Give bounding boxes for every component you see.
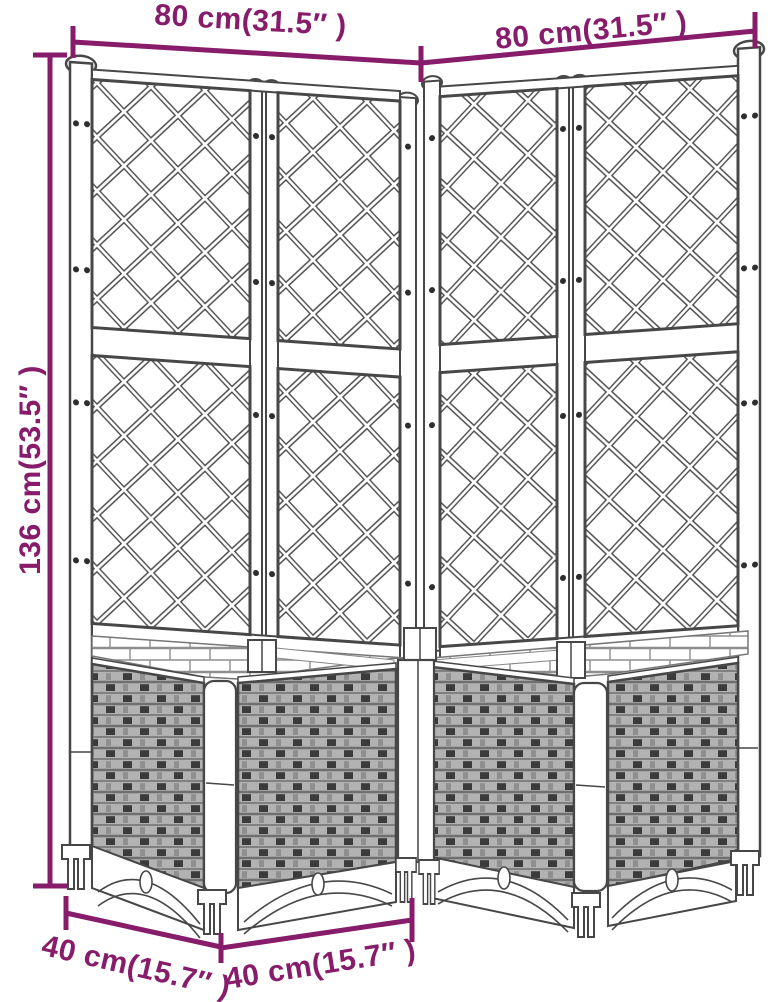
- corner-trim: [204, 681, 236, 893]
- box-weave-face: [238, 669, 396, 889]
- diagram-page: 80 cm(31.5″ ) 80 cm(31.5″ ) 136 cm(53.5″…: [0, 0, 770, 1002]
- lattice-panel: [92, 80, 250, 339]
- planter-boxes: [62, 628, 759, 938]
- box-weave-face: [608, 663, 738, 887]
- trellis-mid-stile: [573, 78, 585, 645]
- lattice-panel: [92, 356, 250, 635]
- trellis-corner-post: [400, 97, 416, 674]
- trellis-mid-stile: [557, 80, 569, 647]
- lattice-panel: [585, 76, 738, 335]
- trellis-post-left: [70, 62, 92, 848]
- lattice-panel: [278, 369, 400, 646]
- lattice-panel: [440, 88, 557, 344]
- box-weave-face: [432, 667, 574, 888]
- planter-trellis-dimension-diagram: 80 cm(31.5″ ) 80 cm(31.5″ ) 136 cm(53.5″…: [0, 0, 770, 1002]
- trellis-mid-stile: [250, 83, 262, 670]
- trellis-corner-post: [424, 81, 440, 652]
- product-line-art: [62, 40, 764, 938]
- inner-corner-trim: [398, 660, 434, 862]
- trellis-post-right: [738, 47, 760, 858]
- lattice-panel: [440, 364, 557, 646]
- trellis-mid-stile: [266, 84, 278, 671]
- skirt-ornament: [666, 869, 678, 891]
- skirt-ornament: [498, 867, 510, 889]
- lattice-panel: [585, 352, 738, 637]
- lattice-panel: [278, 93, 400, 350]
- dimension-label-height: 136 cm(53.5″ ): [14, 365, 47, 575]
- skirt-ornament: [140, 871, 152, 893]
- skirt-ornament: [312, 873, 324, 895]
